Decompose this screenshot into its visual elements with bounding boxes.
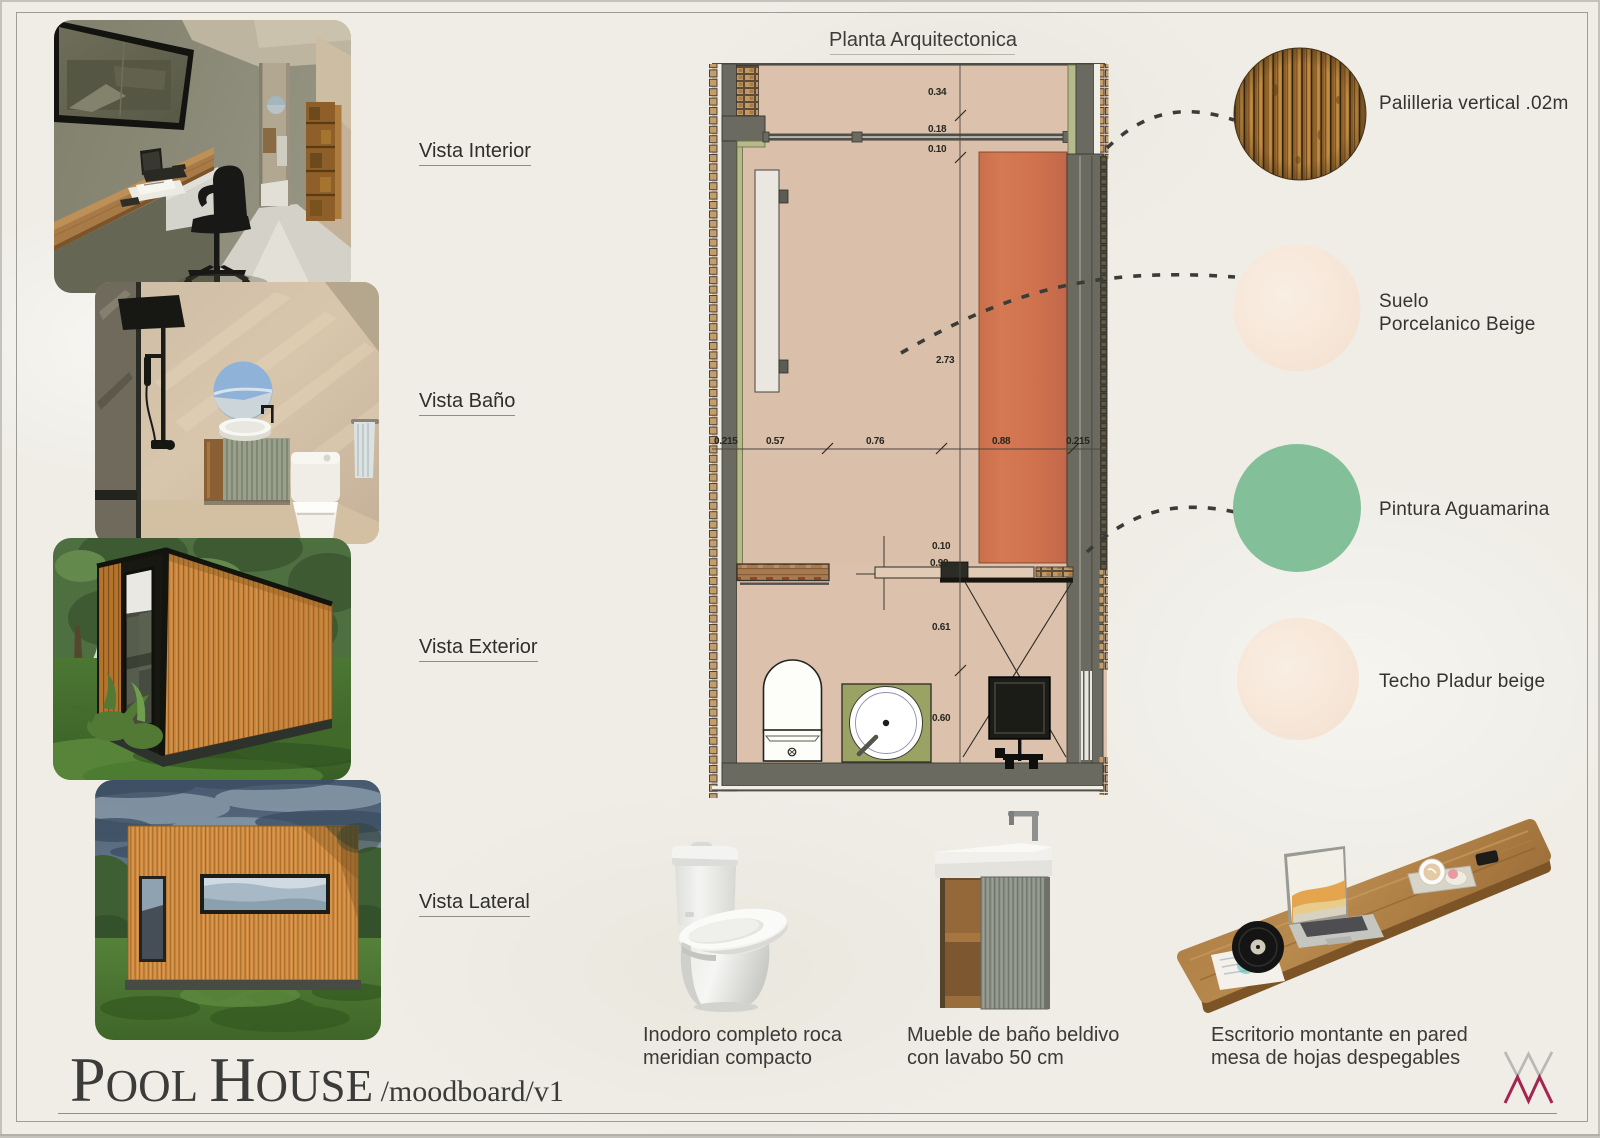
svg-text:0.57: 0.57 — [766, 436, 785, 447]
svg-text:0.215: 0.215 — [714, 436, 738, 447]
